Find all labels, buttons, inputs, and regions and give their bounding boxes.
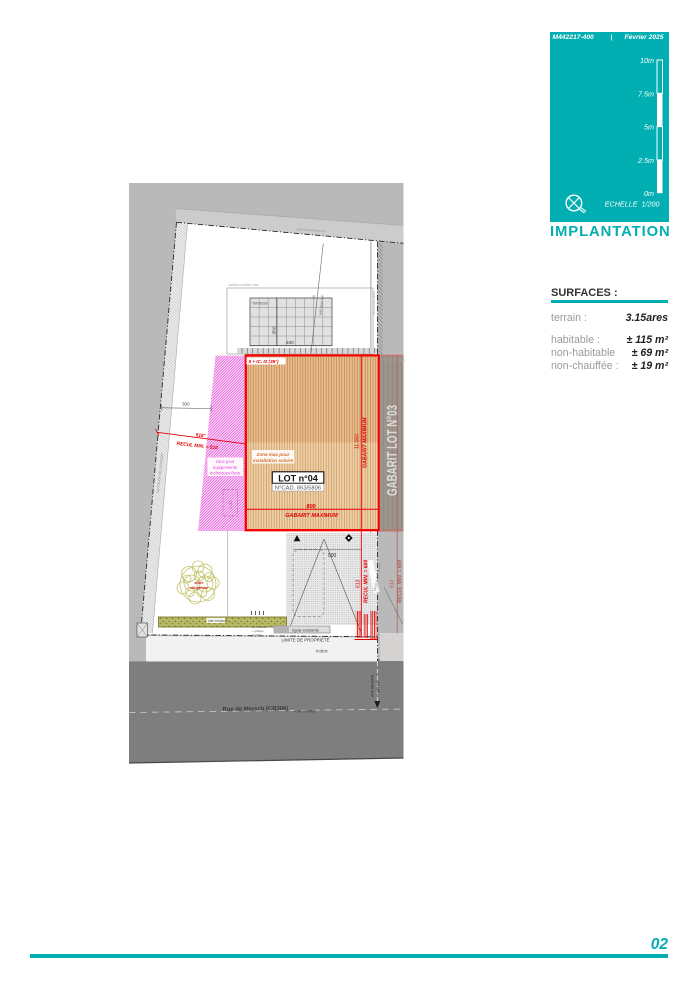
svg-text:II + IC. I2 (35°): II + IC. I2 (35°) (249, 359, 280, 364)
svg-text:LOT n°04: LOT n°04 (278, 473, 318, 483)
svg-text:0m: 0m (644, 189, 654, 198)
svg-text:GABARIT LOT N°03: GABARIT LOT N°03 (385, 405, 401, 496)
svg-text:zone pour: zone pour (216, 459, 235, 464)
svg-text:terrasse: terrasse (253, 301, 269, 306)
svg-text:300: 300 (182, 401, 190, 406)
svg-text:obligatoire: obligatoire (190, 586, 208, 590)
svg-text:LIMITE DE PROPRIÉTÉ: LIMITE DE PROPRIÉTÉ (282, 638, 330, 643)
svg-text:RECUL MIN. = 600: RECUL MIN. = 600 (364, 560, 370, 603)
svg-text:trottoir: trottoir (316, 649, 328, 654)
svg-text:26: 26 (312, 295, 316, 299)
svg-text:rigole existante: rigole existante (292, 627, 320, 632)
svg-text:haie existante: haie existante (208, 619, 228, 623)
svg-text:5m: 5m (644, 122, 654, 131)
svg-text:10m: 10m (640, 56, 654, 65)
svg-text:480: 480 (286, 340, 294, 346)
svg-text:installation solaire: installation solaire (253, 458, 294, 463)
svg-text:arbre: arbre (195, 581, 204, 585)
svg-text:350: 350 (272, 326, 278, 334)
svg-text:techniques fixes: techniques fixes (210, 471, 240, 476)
svg-text:recul 0 cad. lot 03: recul 0 cad. lot 03 (372, 291, 376, 315)
svg-text:613: 613 (356, 579, 362, 588)
svg-text:800: 800 (306, 504, 316, 510)
svg-text:518°: 518° (195, 432, 206, 439)
svg-text:surface scellée max: surface scellée max (229, 283, 259, 287)
svg-text:RECUL MIN. = 600: RECUL MIN. = 600 (398, 560, 404, 603)
svg-text:Rue de Mersch (CR306): Rue de Mersch (CR306) (222, 706, 288, 713)
svg-text:AXE VOIRIE: AXE VOIRIE (294, 709, 317, 714)
svg-text:AXE MAISON: AXE MAISON (371, 674, 375, 697)
svg-text:7.5m: 7.5m (638, 89, 654, 98)
svg-text:Zone max pour: Zone max pour (256, 452, 290, 457)
svg-text:11.050: 11.050 (354, 434, 360, 449)
svg-text:équipements: équipements (213, 465, 237, 470)
svg-text:N°CAD. 863/5806: N°CAD. 863/5806 (275, 486, 321, 492)
svg-text:GABARIT MAXIMUM: GABARIT MAXIMUM (285, 513, 338, 519)
svg-text:2.5m: 2.5m (637, 155, 654, 164)
svg-text:h= 150: h= 150 (252, 633, 261, 637)
svg-text:ECHELLE 1/200: ECHELLE 1/200 (604, 199, 659, 208)
svg-text:2.25: 2.25 (228, 500, 233, 509)
svg-text:GABARIT MAXIMUM: GABARIT MAXIMUM (363, 417, 369, 468)
svg-text:613: 613 (390, 579, 396, 588)
svg-text:00 - 04: 00 - 04 (377, 682, 381, 693)
svg-text:500: 500 (328, 553, 337, 559)
svg-text:P + IC. I2 (35°): P + IC. I2 (35°) (382, 359, 406, 363)
